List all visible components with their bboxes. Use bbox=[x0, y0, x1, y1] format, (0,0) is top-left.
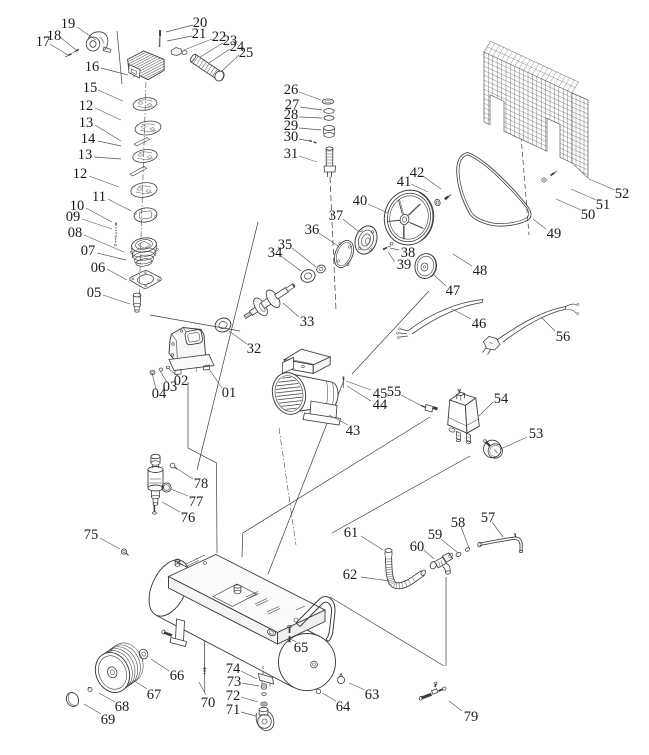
svg-text:56: 56 bbox=[556, 329, 571, 345]
svg-text:13: 13 bbox=[78, 147, 93, 163]
svg-text:61: 61 bbox=[344, 525, 359, 541]
svg-text:60: 60 bbox=[410, 539, 425, 555]
svg-text:45: 45 bbox=[373, 386, 388, 402]
svg-text:57: 57 bbox=[481, 510, 496, 526]
svg-text:46: 46 bbox=[472, 316, 487, 332]
svg-text:79: 79 bbox=[464, 709, 479, 725]
svg-text:75: 75 bbox=[84, 527, 99, 543]
svg-text:11: 11 bbox=[92, 189, 106, 205]
svg-text:48: 48 bbox=[473, 263, 488, 279]
svg-text:31: 31 bbox=[284, 146, 299, 162]
svg-text:15: 15 bbox=[83, 80, 98, 96]
svg-text:17: 17 bbox=[36, 34, 51, 50]
svg-text:14: 14 bbox=[81, 131, 96, 147]
svg-text:39: 39 bbox=[397, 257, 412, 273]
svg-text:52: 52 bbox=[615, 186, 630, 202]
svg-text:01: 01 bbox=[222, 385, 237, 401]
svg-text:76: 76 bbox=[181, 510, 196, 526]
svg-text:64: 64 bbox=[336, 699, 351, 715]
svg-text:43: 43 bbox=[346, 423, 361, 439]
svg-text:42: 42 bbox=[410, 165, 425, 181]
svg-text:05: 05 bbox=[87, 285, 102, 301]
svg-text:65: 65 bbox=[294, 640, 309, 656]
svg-text:36: 36 bbox=[305, 222, 320, 238]
svg-text:26: 26 bbox=[284, 82, 299, 98]
svg-text:68: 68 bbox=[115, 699, 130, 715]
svg-text:12: 12 bbox=[79, 98, 94, 114]
svg-text:25: 25 bbox=[239, 45, 254, 61]
svg-text:78: 78 bbox=[194, 476, 209, 492]
svg-text:58: 58 bbox=[451, 515, 466, 531]
svg-text:12: 12 bbox=[73, 166, 88, 182]
svg-text:74: 74 bbox=[226, 661, 241, 677]
svg-text:13: 13 bbox=[79, 115, 94, 131]
svg-text:30: 30 bbox=[284, 129, 299, 145]
svg-text:69: 69 bbox=[101, 712, 116, 728]
svg-text:70: 70 bbox=[201, 695, 216, 711]
svg-text:62: 62 bbox=[343, 567, 358, 583]
svg-text:21: 21 bbox=[192, 26, 207, 42]
svg-text:33: 33 bbox=[300, 314, 315, 330]
svg-text:35: 35 bbox=[278, 237, 293, 253]
svg-text:72: 72 bbox=[226, 688, 241, 704]
svg-text:77: 77 bbox=[189, 494, 204, 510]
svg-text:06: 06 bbox=[91, 260, 106, 276]
svg-text:55: 55 bbox=[387, 384, 402, 400]
svg-text:47: 47 bbox=[446, 283, 461, 299]
svg-text:71: 71 bbox=[226, 702, 241, 718]
svg-text:63: 63 bbox=[365, 687, 380, 703]
svg-text:32: 32 bbox=[247, 341, 262, 357]
svg-text:51: 51 bbox=[596, 197, 611, 213]
svg-text:08: 08 bbox=[68, 225, 83, 241]
svg-text:07: 07 bbox=[81, 243, 96, 259]
svg-text:50: 50 bbox=[581, 207, 596, 223]
svg-text:54: 54 bbox=[494, 391, 509, 407]
svg-text:19: 19 bbox=[61, 16, 76, 32]
svg-text:67: 67 bbox=[147, 687, 162, 703]
svg-text:53: 53 bbox=[529, 426, 544, 442]
svg-text:16: 16 bbox=[85, 59, 100, 75]
svg-text:37: 37 bbox=[329, 208, 344, 224]
svg-text:04: 04 bbox=[152, 386, 167, 402]
svg-text:09: 09 bbox=[66, 209, 81, 225]
svg-text:59: 59 bbox=[428, 527, 443, 543]
svg-text:40: 40 bbox=[353, 193, 368, 209]
svg-text:66: 66 bbox=[170, 668, 185, 684]
svg-text:49: 49 bbox=[547, 226, 562, 242]
